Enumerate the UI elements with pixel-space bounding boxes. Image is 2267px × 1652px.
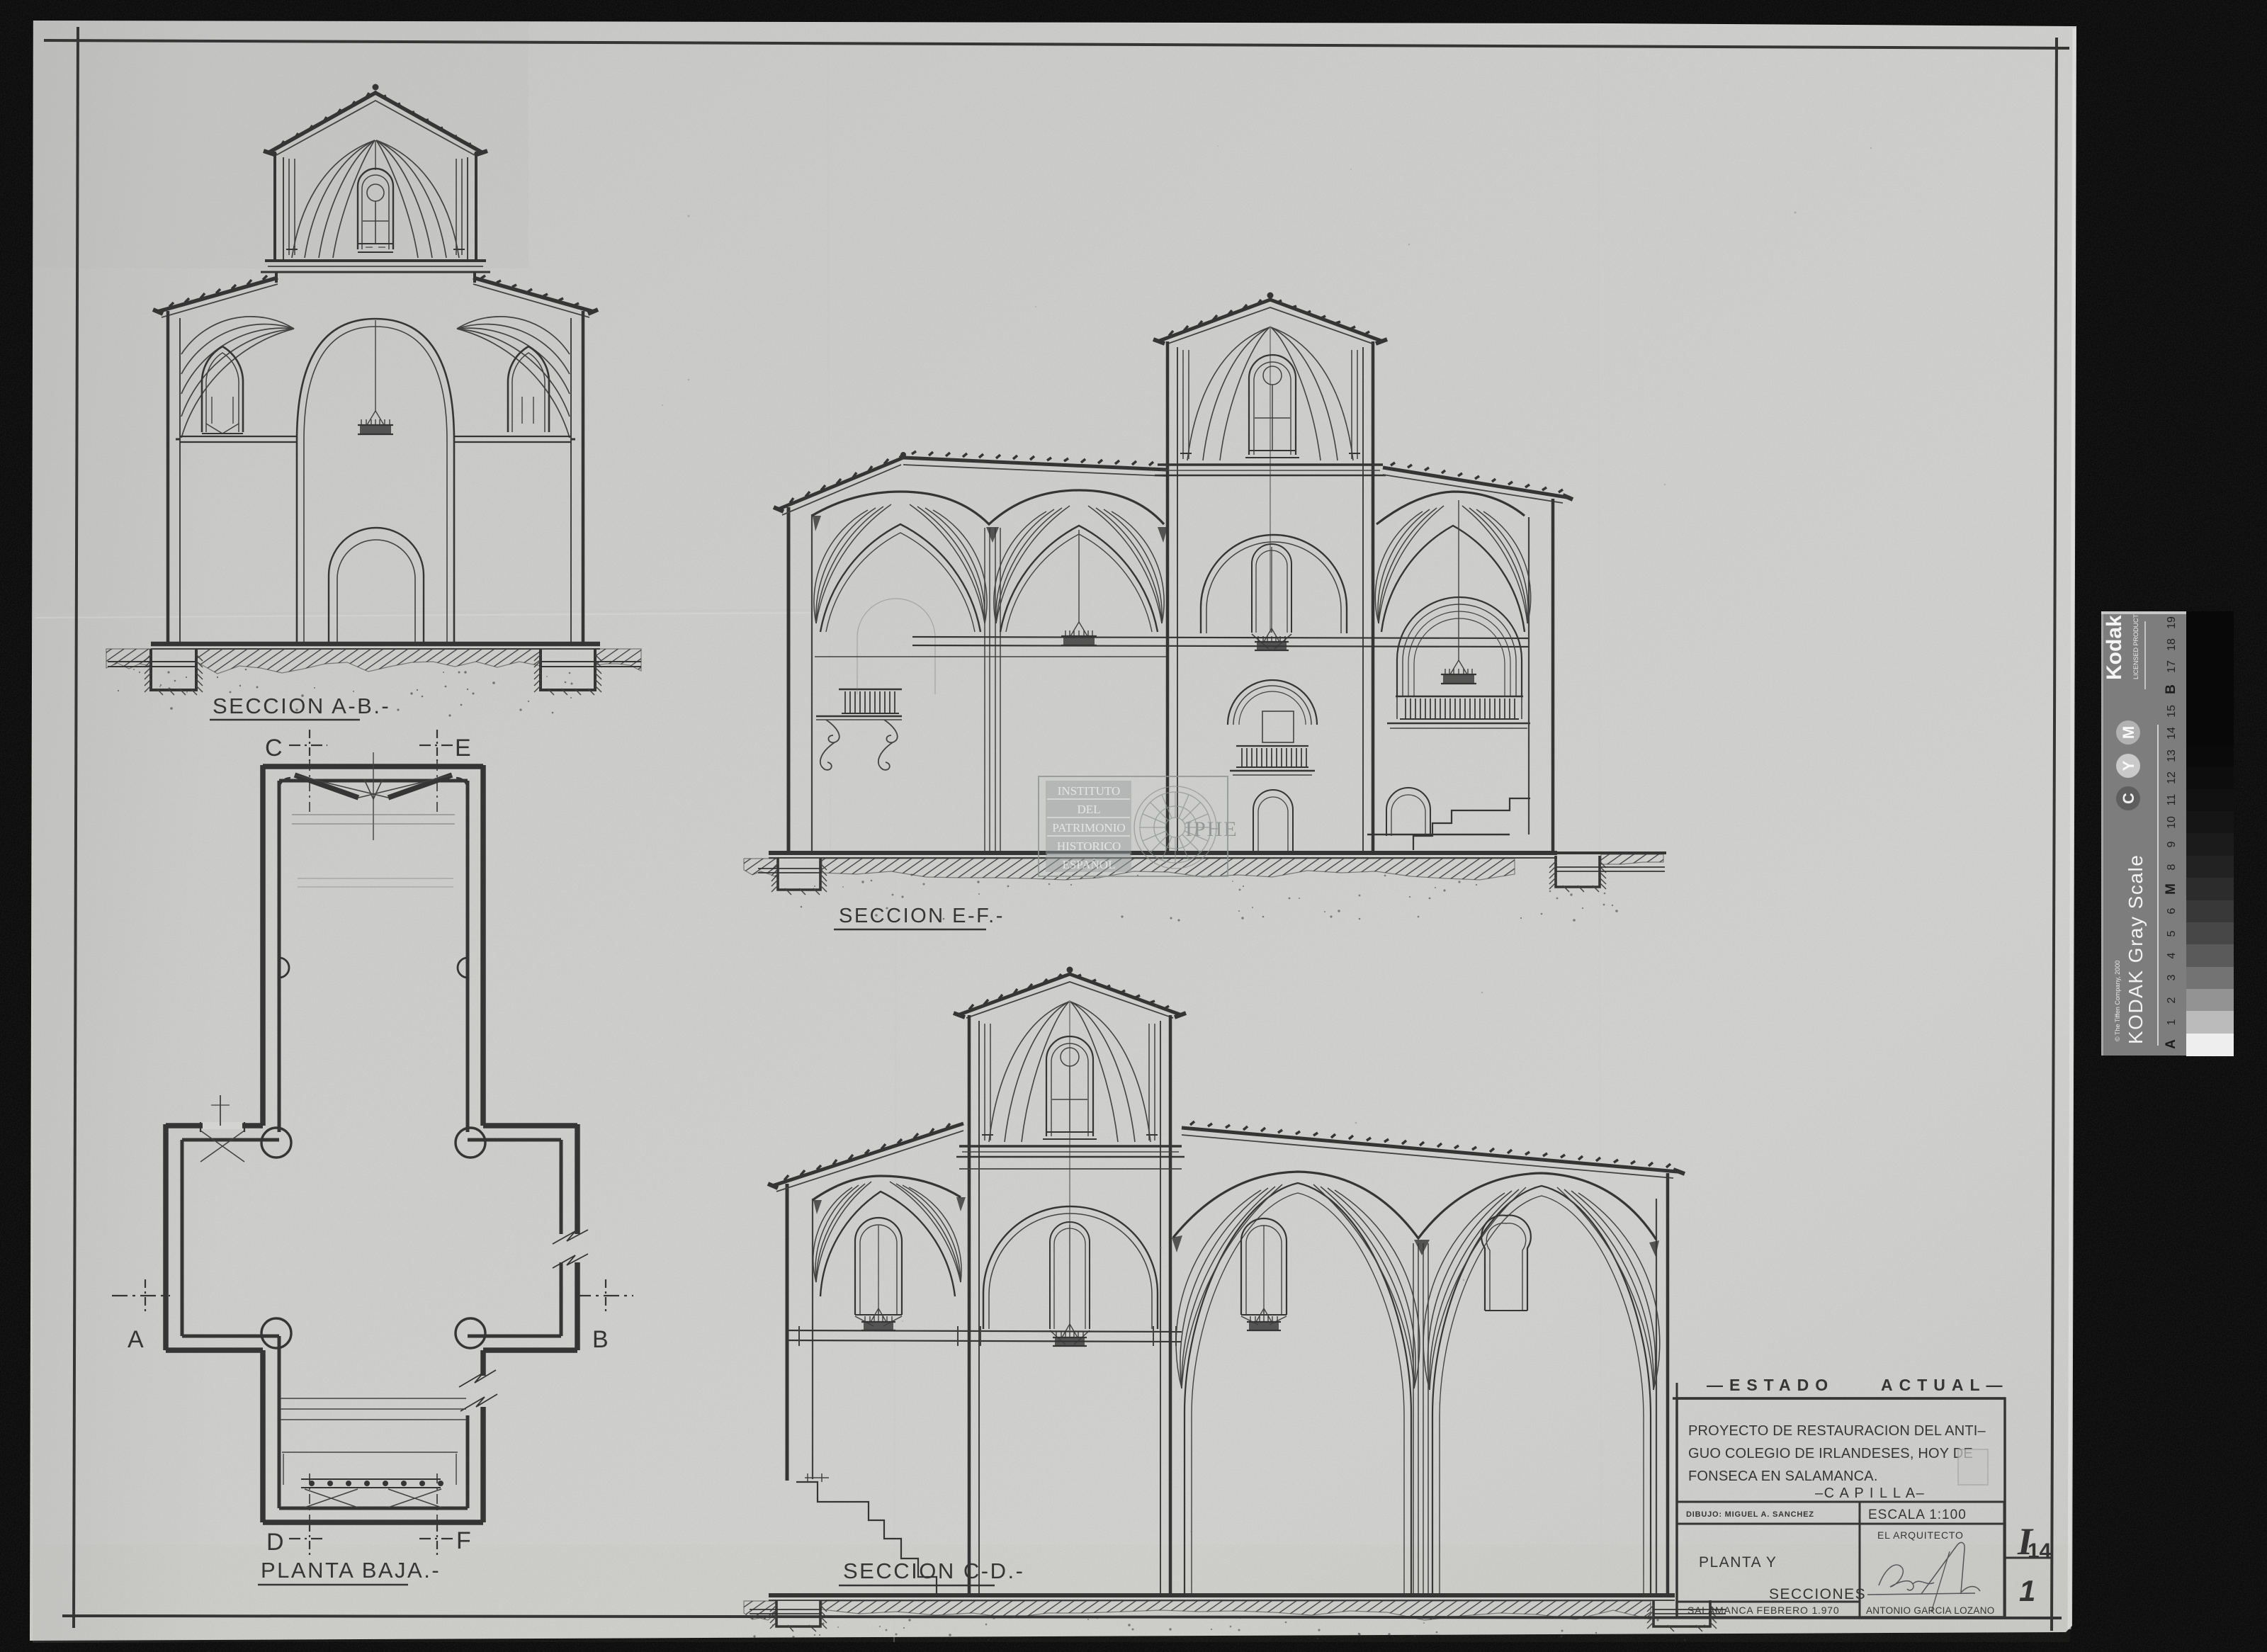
svg-text:PATRIMONIO: PATRIMONIO bbox=[1052, 821, 1125, 835]
svg-text:E: E bbox=[455, 735, 471, 762]
svg-text:ESCALA 1:100: ESCALA 1:100 bbox=[1868, 1507, 1967, 1522]
svg-text:13: 13 bbox=[2166, 749, 2178, 762]
svg-text:19: 19 bbox=[2166, 616, 2178, 629]
svg-text:KODAK Gray Scale: KODAK Gray Scale bbox=[2125, 854, 2147, 1044]
svg-text:IPHE: IPHE bbox=[1185, 817, 1238, 841]
svg-text:6: 6 bbox=[2166, 907, 2178, 914]
svg-text:B: B bbox=[2164, 684, 2178, 694]
svg-text:17: 17 bbox=[2166, 660, 2178, 673]
svg-text:11: 11 bbox=[2166, 794, 2178, 806]
svg-text:Y: Y bbox=[2120, 760, 2137, 771]
svg-text:15: 15 bbox=[2166, 705, 2178, 718]
svg-text:PLANTA BAJA.-: PLANTA BAJA.- bbox=[261, 1558, 441, 1583]
svg-text:FONSECA EN SALAMANCA.: FONSECA EN SALAMANCA. bbox=[1688, 1469, 1878, 1484]
svg-text:9: 9 bbox=[2166, 841, 2178, 847]
svg-text:PLANTA Y: PLANTA Y bbox=[1699, 1554, 1777, 1571]
svg-text:DIBUJO: MIGUEL A. SANCHEZ: DIBUJO: MIGUEL A. SANCHEZ bbox=[1686, 1510, 1814, 1519]
svg-text:—ESTADO: —ESTADO bbox=[1707, 1376, 1834, 1394]
svg-text:Kodak: Kodak bbox=[2103, 615, 2126, 680]
svg-text:2: 2 bbox=[2166, 997, 2178, 1003]
svg-text:4: 4 bbox=[2166, 952, 2178, 958]
svg-text:INSTITUTO: INSTITUTO bbox=[1058, 784, 1120, 798]
svg-text:ACTUAL—: ACTUAL— bbox=[1881, 1376, 2009, 1394]
svg-text:1: 1 bbox=[2019, 1574, 2035, 1607]
svg-text:A: A bbox=[2164, 1039, 2178, 1049]
svg-text:C: C bbox=[265, 735, 283, 762]
svg-text:SALAMANCA FEBRERO 1.970: SALAMANCA FEBRERO 1.970 bbox=[1687, 1605, 1839, 1616]
svg-text:14: 14 bbox=[2028, 1539, 2052, 1563]
svg-text:10: 10 bbox=[2166, 816, 2178, 829]
svg-text:© The Tiffen Company, 2000: © The Tiffen Company, 2000 bbox=[2114, 961, 2121, 1041]
svg-text:SECCION C-D.-: SECCION C-D.- bbox=[843, 1558, 1024, 1583]
svg-text:SECCIONES: SECCIONES bbox=[1769, 1586, 1866, 1602]
svg-text:C: C bbox=[2120, 793, 2137, 804]
svg-text:ESPAÑOL: ESPAÑOL bbox=[1063, 858, 1116, 871]
svg-text:B: B bbox=[592, 1326, 609, 1353]
svg-text:EL ARQUITECTO: EL ARQUITECTO bbox=[1877, 1529, 1964, 1541]
svg-text:GUO COLEGIO DE IRLANDESES,: GUO COLEGIO DE IRLANDESES, HOY DE bbox=[1688, 1446, 1973, 1461]
svg-text:ANTONIO GARCIA LOZANO: ANTONIO GARCIA LOZANO bbox=[1866, 1605, 1995, 1616]
svg-text:F: F bbox=[456, 1527, 471, 1554]
svg-text:HISTORICO: HISTORICO bbox=[1057, 839, 1121, 853]
svg-text:A: A bbox=[128, 1326, 144, 1353]
svg-text:LICENSED PRODUCT: LICENSED PRODUCT bbox=[2132, 613, 2139, 679]
svg-text:14: 14 bbox=[2166, 727, 2178, 740]
svg-text:12: 12 bbox=[2166, 771, 2178, 784]
svg-text:3: 3 bbox=[2166, 974, 2178, 980]
svg-text:SECCION E-F.-: SECCION E-F.- bbox=[839, 905, 1005, 927]
svg-text:DEL: DEL bbox=[1077, 803, 1100, 816]
svg-text:D: D bbox=[266, 1529, 284, 1556]
svg-text:M: M bbox=[2120, 726, 2137, 739]
svg-text:18: 18 bbox=[2166, 638, 2178, 651]
svg-text:5: 5 bbox=[2166, 930, 2178, 937]
svg-text:8: 8 bbox=[2166, 864, 2178, 870]
svg-text:–C A P I L L A–: –C A P I L L A– bbox=[1815, 1486, 1925, 1501]
svg-text:SECCION A-B.-: SECCION A-B.- bbox=[213, 694, 390, 718]
svg-text:PROYECTO DE RESTAURACION DE: PROYECTO DE RESTAURACION DEL ANTI– bbox=[1688, 1423, 1986, 1439]
svg-text:M: M bbox=[2164, 883, 2178, 895]
svg-text:1: 1 bbox=[2166, 1019, 2178, 1025]
